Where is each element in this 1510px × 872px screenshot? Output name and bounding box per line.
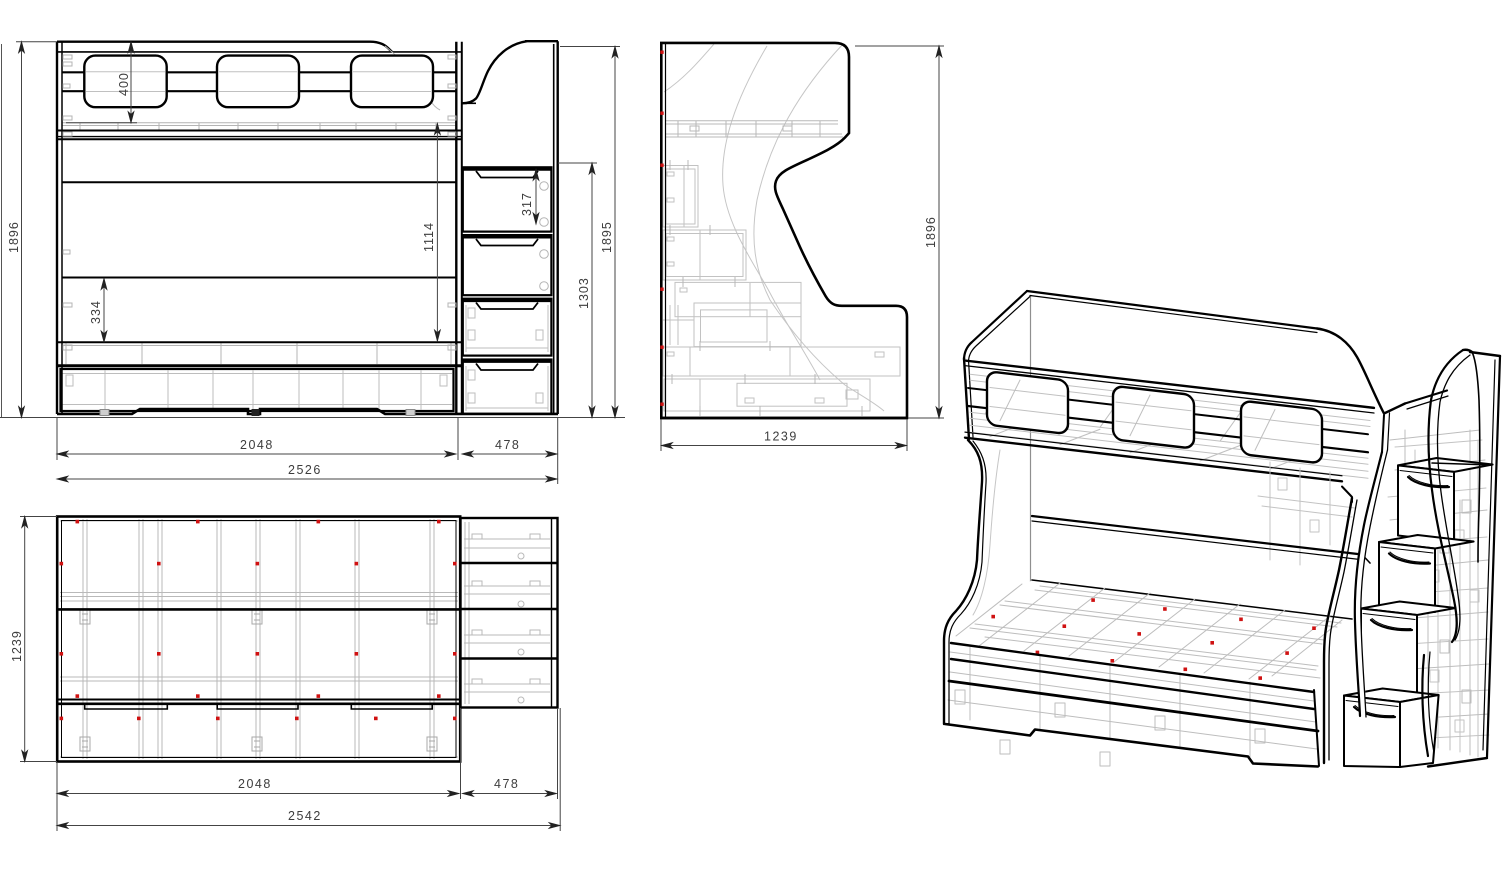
svg-text:2526: 2526 <box>288 463 322 477</box>
svg-text:1896: 1896 <box>924 216 938 248</box>
svg-text:400: 400 <box>117 72 131 96</box>
svg-text:1896: 1896 <box>7 221 21 253</box>
svg-text:478: 478 <box>494 777 519 791</box>
svg-text:2542: 2542 <box>288 809 322 823</box>
svg-text:2048: 2048 <box>238 777 272 791</box>
svg-text:1239: 1239 <box>10 630 24 662</box>
svg-text:478: 478 <box>495 438 520 452</box>
svg-text:317: 317 <box>520 192 534 216</box>
svg-text:1114: 1114 <box>422 222 436 252</box>
svg-text:1239: 1239 <box>764 430 798 444</box>
svg-text:1895: 1895 <box>600 221 614 253</box>
svg-text:334: 334 <box>89 300 103 324</box>
svg-text:1303: 1303 <box>577 277 591 309</box>
svg-text:2048: 2048 <box>240 438 274 452</box>
